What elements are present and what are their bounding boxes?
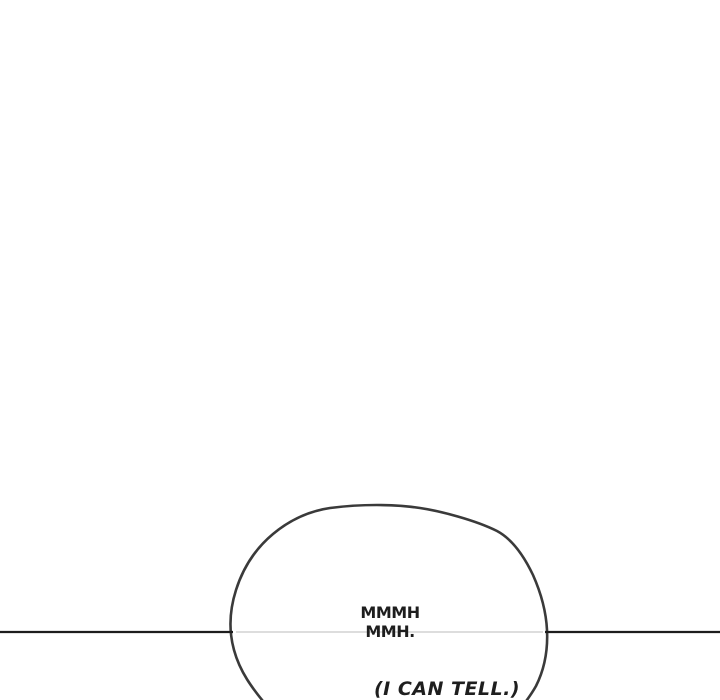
- bubble-text-line2: MMH.: [360, 622, 419, 641]
- panel-artwork: [0, 0, 720, 700]
- aside-caption: (I CAN TELL.): [374, 678, 520, 700]
- speech-bubble-text: MMMH MMH.: [360, 603, 419, 641]
- bubble-text-line1: MMMH: [360, 603, 419, 622]
- comic-panel: MMMH MMH. (I CAN TELL.): [0, 0, 720, 700]
